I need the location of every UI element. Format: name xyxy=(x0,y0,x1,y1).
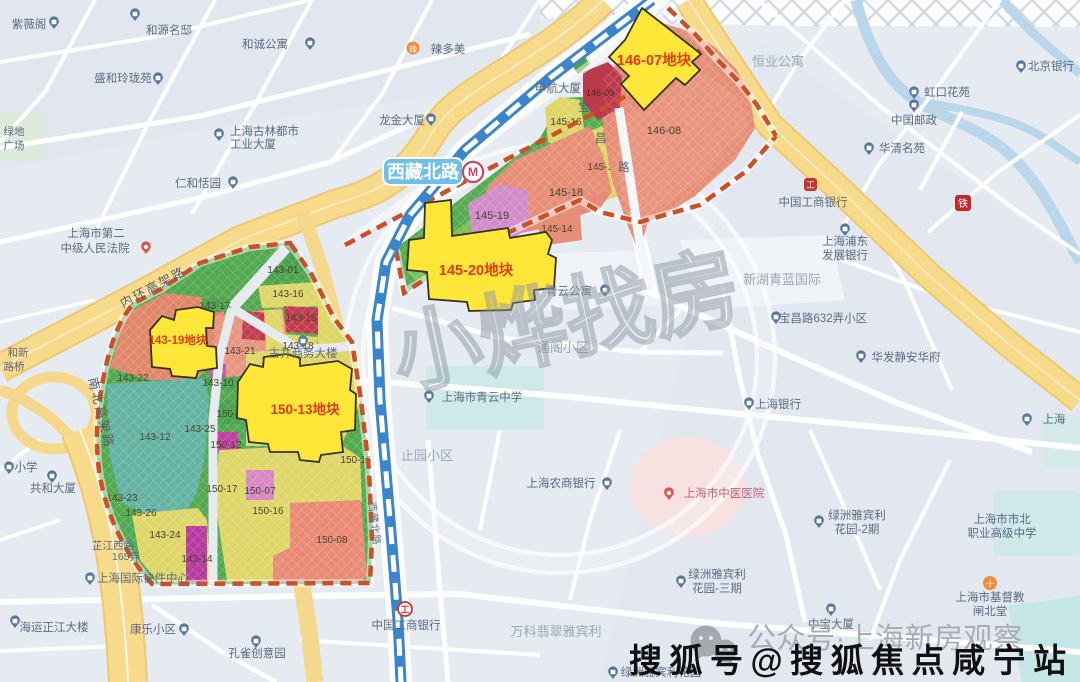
svg-text:和新: 和新 xyxy=(8,346,29,359)
svg-text:上海: 上海 xyxy=(1043,412,1066,426)
svg-text:铁: 铁 xyxy=(958,197,968,210)
svg-text:搜狐号@搜狐焦点咸宁站: 搜狐号@搜狐焦点咸宁站 xyxy=(629,642,1074,679)
svg-text:143-12: 143-12 xyxy=(139,432,171,443)
svg-text:150-13地块: 150-13地块 xyxy=(270,401,340,417)
svg-text:恒业公寓: 恒业公寓 xyxy=(752,54,804,69)
svg-text:上海国际快件中心: 上海国际快件中心 xyxy=(97,571,189,585)
svg-text:工: 工 xyxy=(806,180,815,190)
svg-text:闸北堂: 闸北堂 xyxy=(973,605,1008,618)
svg-text:工业大厦: 工业大厦 xyxy=(230,137,276,151)
svg-text:上海市基督教: 上海市基督教 xyxy=(956,590,1025,604)
svg-text:中级人民法院: 中级人民法院 xyxy=(61,241,130,255)
svg-text:143-10: 143-10 xyxy=(202,378,234,389)
svg-text:中国工商银行: 中国工商银行 xyxy=(372,618,441,632)
svg-text:路桥: 路桥 xyxy=(4,360,25,373)
svg-text:143-21: 143-21 xyxy=(224,346,256,357)
svg-text:中国邮政: 中国邮政 xyxy=(891,113,937,127)
svg-text:宝: 宝 xyxy=(578,100,590,114)
svg-text:143-23: 143-23 xyxy=(106,493,138,504)
svg-text:仁和恬园: 仁和恬园 xyxy=(175,177,221,190)
svg-text:和诚公寓: 和诚公寓 xyxy=(242,37,288,51)
svg-text:西藏北路: 西藏北路 xyxy=(387,161,460,182)
svg-text:绿洲雅宾利: 绿洲雅宾利 xyxy=(828,508,886,522)
svg-text:上海市第二: 上海市第二 xyxy=(67,226,125,240)
svg-text:150-12: 150-12 xyxy=(210,440,242,451)
svg-text:万科翡翠雅宾利: 万科翡翠雅宾利 xyxy=(510,624,601,639)
svg-text:止园小区: 止园小区 xyxy=(401,448,453,463)
svg-text:143-14: 143-14 xyxy=(181,554,213,565)
svg-text:150-08: 150-08 xyxy=(316,535,348,546)
svg-text:145-19: 145-19 xyxy=(475,210,509,222)
svg-text:143-01: 143-01 xyxy=(267,265,299,276)
svg-text:华发静安华府: 华发静安华府 xyxy=(872,350,941,364)
svg-text:146-08: 146-08 xyxy=(647,125,681,137)
svg-text:职业高级中学: 职业高级中学 xyxy=(968,526,1037,540)
svg-text:和源名邸: 和源名邸 xyxy=(146,23,192,37)
svg-text:海运正江大楼: 海运正江大楼 xyxy=(20,620,89,634)
svg-text:盛和玲珑苑: 盛和玲珑苑 xyxy=(94,71,152,85)
svg-text:上海市市北: 上海市市北 xyxy=(973,512,1031,526)
svg-text:花园-三期: 花园-三期 xyxy=(692,582,742,595)
svg-text:小学: 小学 xyxy=(15,460,38,474)
svg-text:辣: 辣 xyxy=(409,44,417,54)
svg-text:申航大厦: 申航大厦 xyxy=(535,81,581,95)
svg-text:143-22: 143-22 xyxy=(117,373,149,384)
svg-text:花园-2期: 花园-2期 xyxy=(835,523,880,536)
svg-text:古井商务大楼: 古井商务大楼 xyxy=(269,346,338,360)
svg-text:上海农商银行: 上海农商银行 xyxy=(527,476,596,490)
svg-text:辣多美: 辣多美 xyxy=(431,42,466,56)
svg-text:上海浦东: 上海浦东 xyxy=(822,234,868,248)
svg-text:路: 路 xyxy=(618,160,630,174)
svg-text:143-24: 143-24 xyxy=(149,530,181,541)
svg-text:143-15: 143-15 xyxy=(285,313,317,324)
svg-text:146-09: 146-09 xyxy=(586,88,614,98)
svg-text:昌: 昌 xyxy=(595,132,607,145)
svg-text:上海银行: 上海银行 xyxy=(755,397,801,411)
svg-text:绿洲雅宾利: 绿洲雅宾利 xyxy=(688,567,746,581)
svg-text:143-16: 143-16 xyxy=(272,289,304,300)
svg-text:上海市中医医院: 上海市中医医院 xyxy=(684,486,765,500)
svg-text:发展银行: 发展银行 xyxy=(822,248,868,262)
svg-text:紫薇阁: 紫薇阁 xyxy=(12,17,47,31)
svg-text:广场: 广场 xyxy=(4,139,25,152)
svg-text:共和大厦: 共和大厦 xyxy=(30,481,76,495)
svg-text:十: 十 xyxy=(985,578,994,589)
svg-text:虹口花苑: 虹口花苑 xyxy=(924,86,970,99)
svg-text:工: 工 xyxy=(400,605,409,615)
svg-text:康乐小区: 康乐小区 xyxy=(130,622,176,636)
svg-text:150-07: 150-07 xyxy=(244,486,276,497)
svg-text:宝昌路632弄小区: 宝昌路632弄小区 xyxy=(779,311,867,325)
svg-text:新湖青蓝国际: 新湖青蓝国际 xyxy=(743,272,821,287)
svg-text:165弄: 165弄 xyxy=(112,551,140,563)
svg-text:143-26: 143-26 xyxy=(125,508,157,519)
svg-text:150-17: 150-17 xyxy=(206,484,238,495)
svg-text:145-20地块: 145-20地块 xyxy=(439,261,514,279)
svg-text:150-16: 150-16 xyxy=(252,506,284,517)
svg-text:华清名苑: 华清名苑 xyxy=(879,141,925,155)
svg-text:中国工商银行: 中国工商银行 xyxy=(779,195,848,209)
svg-text:绿地: 绿地 xyxy=(4,125,25,138)
svg-text:龙金大厦: 龙金大厦 xyxy=(379,113,425,127)
svg-text:146-07地块: 146-07地块 xyxy=(617,51,692,69)
svg-text:143-19地块: 143-19地块 xyxy=(149,333,208,347)
svg-text:上海古林都市: 上海古林都市 xyxy=(230,124,299,138)
svg-text:143-25: 143-25 xyxy=(184,424,216,435)
svg-text:孔雀创意园: 孔雀创意园 xyxy=(228,646,286,660)
svg-text:北京银行: 北京银行 xyxy=(1028,59,1074,73)
